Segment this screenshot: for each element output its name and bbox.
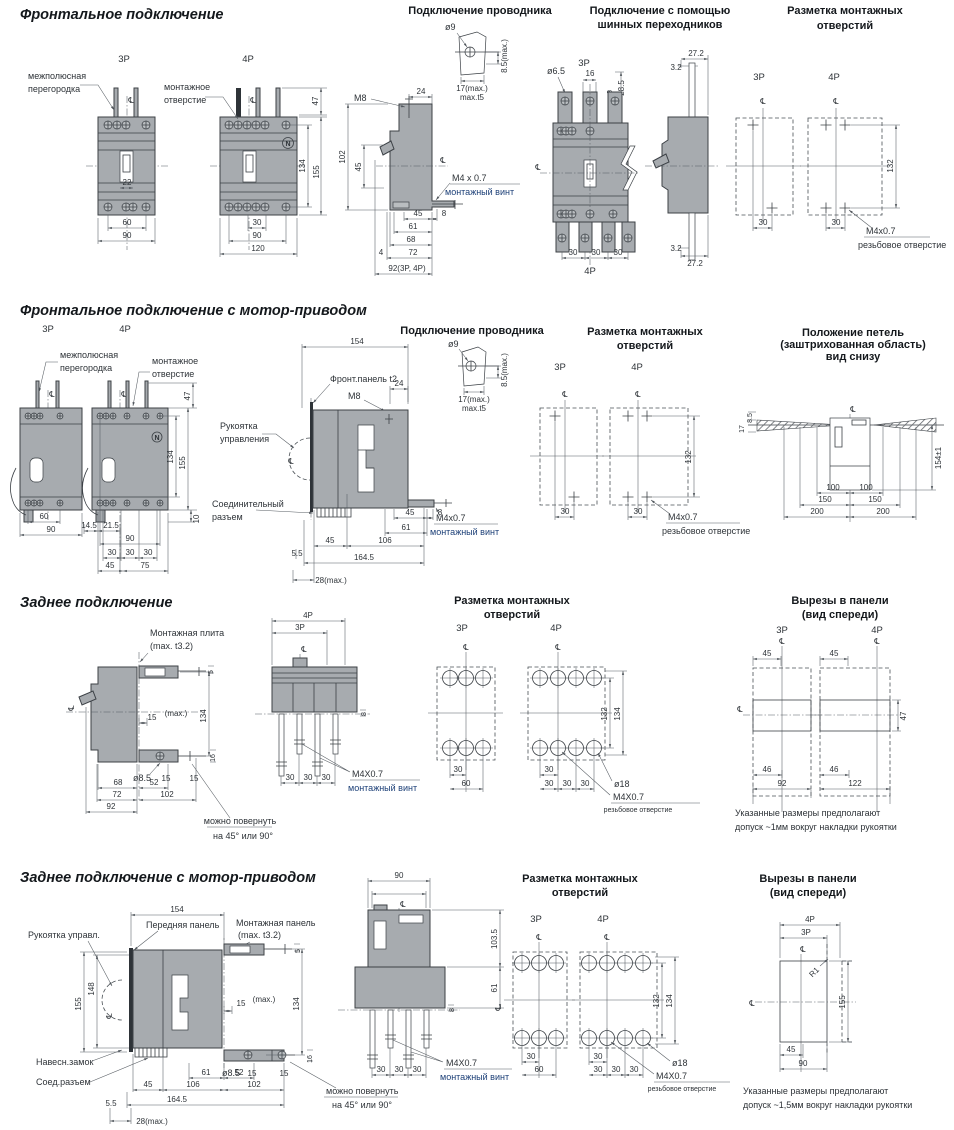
drawing-front-views-motor: 3P 4P межполюсная перегородка монтажное … [10,324,201,574]
section-rear-motor: Заднее подключение с мотор-приводом 154 … [0,865,954,1130]
dim-label: 45 [787,1045,796,1054]
dim-label: 3.2 [670,244,682,253]
section-frontal-motor: Фронтальное подключение с мотор-приводом… [0,300,954,590]
callout-label: Соед.разъем [36,1077,91,1087]
dim-label: (max.) [253,995,276,1004]
centerline-symbol: ℄ [832,97,839,106]
dim-label: 30 [395,1065,404,1074]
dim-label: 24 [395,379,404,388]
callout-label: M4 x 0.7 [452,173,487,183]
drawing-title: Вырезы в панели [759,873,856,885]
neutral-mark: N [285,141,290,148]
dim-label: 30 [592,248,601,257]
dim-label: 28(max.) [136,1117,168,1126]
callout-label: ø6.5 [547,66,565,76]
dim-label: 100 [859,483,873,492]
dim-label: 155 [312,165,321,179]
dim-label: 28(max.) [315,576,347,585]
dim-label: 30 [594,1065,603,1074]
centerline-symbol: ℄ [462,643,469,652]
drawing-rear-top-view: 4P 3P ℄ 8 30 30 30 M4X0.7 монтажный винт [255,611,420,793]
callout-label: перегородка [60,363,112,373]
callout-label: монтажное [164,82,210,92]
note-text: допуск ~1,5мм вокруг накладки рукоятки [743,1100,912,1110]
drawing-rear-side-view: Монтажная плита (max. t3.2) ℄ 5 134 15 (… [66,628,277,841]
pole-label: 4P [584,266,596,277]
callout-label: Рукоятка управл. [28,930,100,940]
dim-label: 90 [47,525,56,534]
dim-label: 90 [123,231,132,240]
dim-label: 17 [739,425,746,433]
dim-label: 132 [684,450,693,464]
dim-label: 61 [402,523,411,532]
callout-label: резьбовое отверстие [604,806,673,814]
pole-label: 4P [550,623,562,634]
pole-label: 4P [828,72,840,83]
callout-label: Соединительный [212,499,284,509]
centerline-symbol: ℄ [799,945,806,954]
pole-label: 3P [554,362,566,373]
callout-label: M4X0.7 [613,792,644,802]
dim-label: R1 [807,965,821,979]
dim-label: 155 [838,995,847,1009]
callout-label: на 45° или 90° [213,831,273,841]
centerline-symbol: ℄ [873,637,880,646]
pole-label: 4P [119,324,131,335]
dim-label: 17(max.) [458,395,490,404]
dim-label: 60 [535,1065,544,1074]
dim-label: 30 [144,548,153,557]
pole-label: 4P [597,914,609,925]
callout-label: ø9 [448,339,459,349]
drawing-busbar-adapters: Подключение с помощью шинных переходнико… [534,5,730,277]
centerline-symbol: ℄ [554,643,561,652]
dim-label: 16 [210,754,217,762]
centerline-symbol: ℄ [399,900,406,909]
dim-label: 8 [438,508,443,517]
centerline-symbol: ℄ [778,637,785,646]
dim-label: 45 [144,1080,153,1089]
dim-label: 45 [406,508,415,517]
callout-label: можно повернуть [326,1086,399,1096]
drawing-title: вид снизу [826,351,881,363]
dim-label: 8.5 [747,413,754,423]
callout-label: межполюсная [28,71,86,81]
dim-label: 154±1 [934,446,943,469]
dim-label: 90 [799,1059,808,1068]
drawing-conductor-connection-2: Подключение проводника ø9 17(max.) max.t… [400,325,544,413]
dim-label: 30 [634,507,643,516]
callout-label: отверстие [164,95,206,105]
callout-label: ø18 [614,779,630,789]
callout-label: монтажный винт [348,783,417,793]
dim-label: 30 [413,1065,422,1074]
dim-label: 30 [545,779,554,788]
drawing-mounting-holes-2: Разметка монтажных отверстий 3P 4P ℄ ℄ 3… [530,326,750,536]
dim-label: 30 [322,773,331,782]
callout-label: M4X0.7 [352,769,383,779]
callout-label: ø9 [445,22,456,32]
dim-label: 45 [106,561,115,570]
callout-label: M4X0.7 [446,1058,477,1068]
pole-label: 4P [805,915,815,924]
callout-label: Монтажная плита [150,628,224,638]
dim-label: 155 [74,997,83,1011]
section-rear-connection: Заднее подключение Монтажная плита (max.… [0,590,954,865]
drawing-title: (заштрихованная область) [780,339,926,351]
centerline-symbol: ℄ [48,390,55,399]
centerline-symbol: ℄ [534,163,541,172]
callout-label: можно повернуть [204,816,277,826]
dim-label: 8.5(max.) [500,353,509,387]
drawing-panel-cutouts-2: Вырезы в панели (вид спереди) 4P 3P ℄ ℄ … [743,873,912,1110]
pole-label: 4P [303,611,313,620]
pole-label: 4P [631,362,643,373]
dim-label: 5 [295,949,302,953]
section-title: Фронтальное подключение [20,7,224,23]
drawing-title: Разметка монтажных [787,5,904,17]
dim-label: 22 [123,178,132,187]
dim-label: 15 [237,999,246,1008]
dim-label: 72 [409,248,418,257]
dim-label: 16 [586,69,595,78]
dim-label: 120 [251,244,265,253]
dim-label: 30 [126,548,135,557]
centerline-symbol: ℄ [287,457,294,466]
dim-label: 61 [409,222,418,231]
drawing-title: (вид спереди) [802,609,879,621]
callout-label: M4x0.7 [866,226,896,236]
section-title: Фронтальное подключение с мотор-приводом [20,303,367,319]
dim-label: 60 [123,218,132,227]
drawing-mounting-holes: Разметка монтажных отверстий 3P 4P ℄ ℄ 3… [726,5,946,250]
note-text: допуск ~1мм вокруг накладки рукоятки [735,822,897,832]
dim-label: 68 [114,778,123,787]
dim-label: 92 [778,779,787,788]
centerline-symbol: ℄ [127,96,134,105]
dim-label: 134 [298,159,307,173]
dim-label: 72 [113,790,122,799]
dim-label: 46 [830,765,839,774]
dim-label: max.t5 [460,93,485,102]
dim-label: 200 [810,507,824,516]
callout-label: Монтажная панель [236,918,316,928]
dim-label: 134 [292,997,301,1011]
dim-label: 30 [630,1065,639,1074]
dim-label: 45 [354,162,363,171]
dim-label: 100 [826,483,840,492]
drawing-mounting-holes-4: Разметка монтажных отверстий 3P 4P ℄ ℄ ℄… [494,873,730,1093]
centerline-symbol: ℄ [535,933,542,942]
dim-label: (max.) [165,709,188,718]
callout-label: на 45° или 90° [332,1100,392,1110]
dim-label: 30 [561,507,570,516]
dim-label: 102 [160,790,174,799]
callout-label: управления [220,434,269,444]
pole-label: 4P [871,625,883,636]
callout-label: M4X0.7 [656,1071,687,1081]
dim-label: 148 [87,982,96,996]
centerline-symbol: ℄ [300,645,307,654]
dim-label: 134 [166,450,175,464]
dim-label: 45 [830,649,839,658]
drawing-title: Разметка монтажных [587,326,704,338]
drawing-front-views: 3P 4P ℄ 22 60 90 ℄ N 30 90 120 [28,54,327,257]
centerline-symbol: ℄ [249,96,256,105]
pole-label: 4P [242,54,254,65]
dim-label: 61 [202,1068,211,1077]
centerline-symbol: ℄ [849,405,856,414]
note-text: Указанные размеры предполагают [743,1086,888,1096]
dim-label: 5.5 [291,549,303,558]
dim-label: 122 [848,779,862,788]
dim-label: 92 [107,802,116,811]
centerline-symbol: ℄ [494,1005,503,1012]
pole-label: 3P [295,623,305,632]
drawing-title: Разметка монтажных [522,873,639,885]
callout-label: разъем [212,512,243,522]
dim-label: 3.2 [670,63,682,72]
dim-label: 30 [304,773,313,782]
dim-label: 132 [600,707,609,721]
callout-label: резьбовое отверстие [662,526,750,536]
dim-label: 30 [594,1052,603,1061]
callout-label: резьбовое отверстие [858,240,946,250]
dim-label: 200 [876,507,890,516]
callout-label: Навесн.замок [36,1057,93,1067]
callout-label: ø18 [672,1058,688,1068]
section-title: Заднее подключение с мотор-приводом [20,870,316,886]
dim-label: 92(3P, 4P) [388,264,426,273]
dim-label: 60 [40,512,49,521]
drawing-rear-motor-side-view: 154 Рукоятка управл. Передняя панель Мон… [28,905,399,1126]
drawing-panel-cutouts: Вырезы в панели (вид спереди) 3P 4P ℄ ℄ … [735,595,908,832]
dim-label: 132 [886,159,895,173]
dim-label: 4 [379,248,384,257]
dim-label: 30 [527,1052,536,1061]
dim-label: 60 [462,779,471,788]
dim-label: 30 [569,248,578,257]
pole-label: 3P [801,928,811,937]
pole-label: 3P [578,58,590,69]
centerline-symbol: ℄ [105,1013,114,1020]
callout-label: монтажное [152,356,198,366]
dim-label: max.t5 [462,404,487,413]
dim-label: 10 [192,514,201,523]
dim-label: 27.2 [687,259,703,268]
dim-label: 15 [190,774,199,783]
dim-label: 30 [454,765,463,774]
drawing-title: Вырезы в панели [791,595,888,607]
drawing-side-view-motor: 154 Фронт.панель t2 24 M8 ℄ Рукоятка упр… [212,337,499,585]
drawing-title: Подключение проводника [408,5,552,17]
dim-label: 106 [186,1080,200,1089]
drawing-rear-motor-top-view: 90 ℄ 8 30 30 30 M4X0.7 монтажный винт 10… [338,871,512,1082]
dim-label: 15 [248,1069,257,1078]
centerline-symbol: ℄ [759,97,766,106]
dim-label: 45 [414,209,423,218]
dim-label: 164.5 [354,553,375,562]
dim-label: 75 [141,561,150,570]
section-frontal-connection: Фронтальное подключение 3P 4P ℄ 22 60 90… [0,0,954,300]
dim-label: 164.5 [167,1095,188,1104]
drawing-title: отверстий [552,887,608,899]
dim-label: 47 [183,391,192,400]
pole-label: 3P [42,324,54,335]
pole-label: 3P [530,914,542,925]
dim-label: 134 [199,709,208,723]
centerline-symbol: ℄ [67,705,76,712]
pole-label: 3P [456,623,468,634]
centerline-symbol: ℄ [634,390,641,399]
callout-label: монтажный винт [440,1072,509,1082]
dim-label: 30 [286,773,295,782]
centerline-symbol: ℄ [748,999,755,1008]
note-text: Указанные размеры предполагают [735,808,880,818]
pole-label: 3P [753,72,765,83]
centerline-symbol: ℄ [603,933,610,942]
dim-label: 134 [613,707,622,721]
drawing-title: шинных переходников [598,19,723,31]
dim-label: 102 [247,1080,261,1089]
dim-label: 47 [899,711,908,720]
centerline-symbol: ℄ [439,156,446,165]
drawing-mounting-holes-3: Разметка монтажных отверстий 3P 4P ℄ ℄ 3… [428,595,700,814]
drawing-title: Разметка монтажных [454,595,571,607]
callout-label: ø8.5 [133,773,151,783]
callout-label: Передняя панель [146,920,220,930]
dim-label: 134 [665,994,674,1008]
dim-label: 30 [545,765,554,774]
dim-label: 8 [442,209,447,218]
dim-label: 30 [563,779,572,788]
dim-label: 155 [178,456,187,470]
drawing-title: отверстий [617,340,673,352]
pole-label: 3P [776,625,788,636]
callout-label: перегородка [28,84,80,94]
dim-label: 68 [407,235,416,244]
dim-label: 30 [108,548,117,557]
neutral-mark: N [154,435,159,442]
dim-label: 17(max.) [456,84,488,93]
dim-label: 46 [763,765,772,774]
dim-label: 132 [652,994,661,1008]
drawing-loop-position: Положение петель (заштрихованная область… [739,327,944,522]
callout-label: резьбовое отверстие [648,1085,717,1093]
centerline-symbol: ℄ [561,390,568,399]
dim-label: 154 [350,337,364,346]
callout-label: отверстие [152,369,194,379]
dim-label: 27.2 [688,49,704,58]
dim-label: 52 [150,778,159,787]
dim-label: 30 [614,248,623,257]
datasheet-page: Фронтальное подключение 3P 4P ℄ 22 60 90… [0,0,954,1130]
dim-label: 30 [832,218,841,227]
dim-label: 45 [326,536,335,545]
callout-label: (max. t3.2) [238,930,281,940]
dim-label: 103.5 [490,928,499,949]
callout-label: M8 [354,93,367,103]
dim-label: 15 [148,713,157,722]
dim-label: 21.5 [103,521,119,530]
callout-label: монтажный винт [445,187,514,197]
dim-label: 15 [162,774,171,783]
drawing-title: Подключение с помощью [590,5,731,17]
dim-label: 90 [253,231,262,240]
dim-label: 52 [235,1068,244,1077]
callout-label: (max. t3.2) [150,641,193,651]
dim-label: 61 [490,983,499,992]
dim-label: 45 [763,649,772,658]
dim-label: 30 [759,218,768,227]
callout-label: M4x0.7 [668,512,698,522]
callout-label: межполюсная [60,350,118,360]
dim-label: 30 [253,218,262,227]
dim-label: 24 [417,87,426,96]
dim-label: 102 [338,150,347,164]
drawing-title: отверстий [817,20,873,32]
dim-label: 90 [395,871,404,880]
drawing-title: Положение петель [802,327,904,339]
dim-label: 8.5(max.) [500,39,509,73]
dim-label: 14.5 [81,521,97,530]
dim-label: 8 [449,1008,456,1012]
drawing-conductor-connection: Подключение проводника ø9 17(max.) max.t… [338,5,553,276]
section-title: Заднее подключение [20,595,173,611]
drawing-title: (вид спереди) [770,887,847,899]
dim-label: 106 [378,536,392,545]
dim-label: 150 [868,495,882,504]
callout-label: Фронт.панель t2 [330,374,397,384]
dim-label: 8 [361,712,368,716]
callout-label: M8 [348,391,361,401]
drawing-title: Подключение проводника [400,325,544,337]
dim-label: 154 [170,905,184,914]
dim-label: 5.5 [105,1099,117,1108]
dim-label: 30 [581,779,590,788]
dim-label: 16 [307,1055,314,1063]
callout-label: монтажный винт [430,527,499,537]
dim-label: 30 [612,1065,621,1074]
dim-label: 30 [377,1065,386,1074]
dim-label: 47 [311,96,320,105]
centerline-symbol: ℄ [736,705,743,714]
dim-label: 150 [818,495,832,504]
drawing-title: отверстий [484,609,540,621]
pole-label: 3P [118,54,130,65]
dim-label: 90 [126,534,135,543]
callout-label: Рукоятка [220,421,258,431]
